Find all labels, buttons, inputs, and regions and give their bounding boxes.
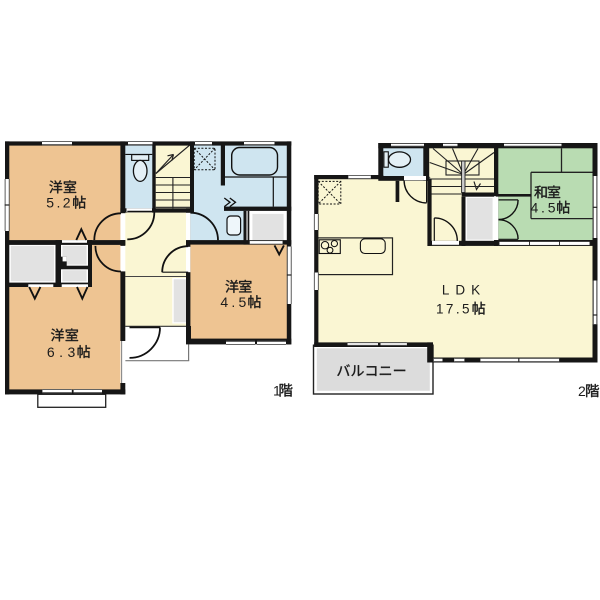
svg-text:4.5: 4.5 (220, 294, 246, 310)
svg-text:LDK: LDK (442, 283, 486, 298)
svg-text:5.2: 5.2 (46, 195, 70, 211)
svg-text:17.5: 17.5 (436, 302, 470, 317)
svg-text:2: 2 (578, 383, 586, 399)
svg-text:6.3: 6.3 (47, 344, 76, 360)
svg-text:4.5: 4.5 (531, 200, 556, 216)
